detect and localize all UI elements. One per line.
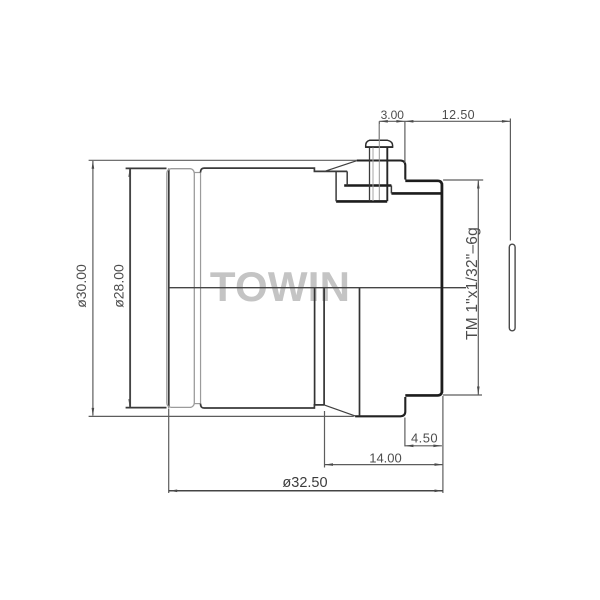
svg-text:ø30.00: ø30.00: [73, 264, 89, 308]
svg-text:12.50: 12.50: [442, 108, 475, 122]
svg-text:14.00: 14.00: [369, 451, 402, 466]
svg-text:4.50: 4.50: [411, 430, 438, 445]
svg-text:3.00: 3.00: [381, 108, 405, 122]
svg-text:ø32.50: ø32.50: [282, 475, 327, 491]
svg-text:ø28.00: ø28.00: [110, 264, 126, 308]
svg-text:TOWIN: TOWIN: [210, 263, 350, 310]
svg-text:TM 1"x1/32"–6g: TM 1"x1/32"–6g: [464, 227, 481, 340]
